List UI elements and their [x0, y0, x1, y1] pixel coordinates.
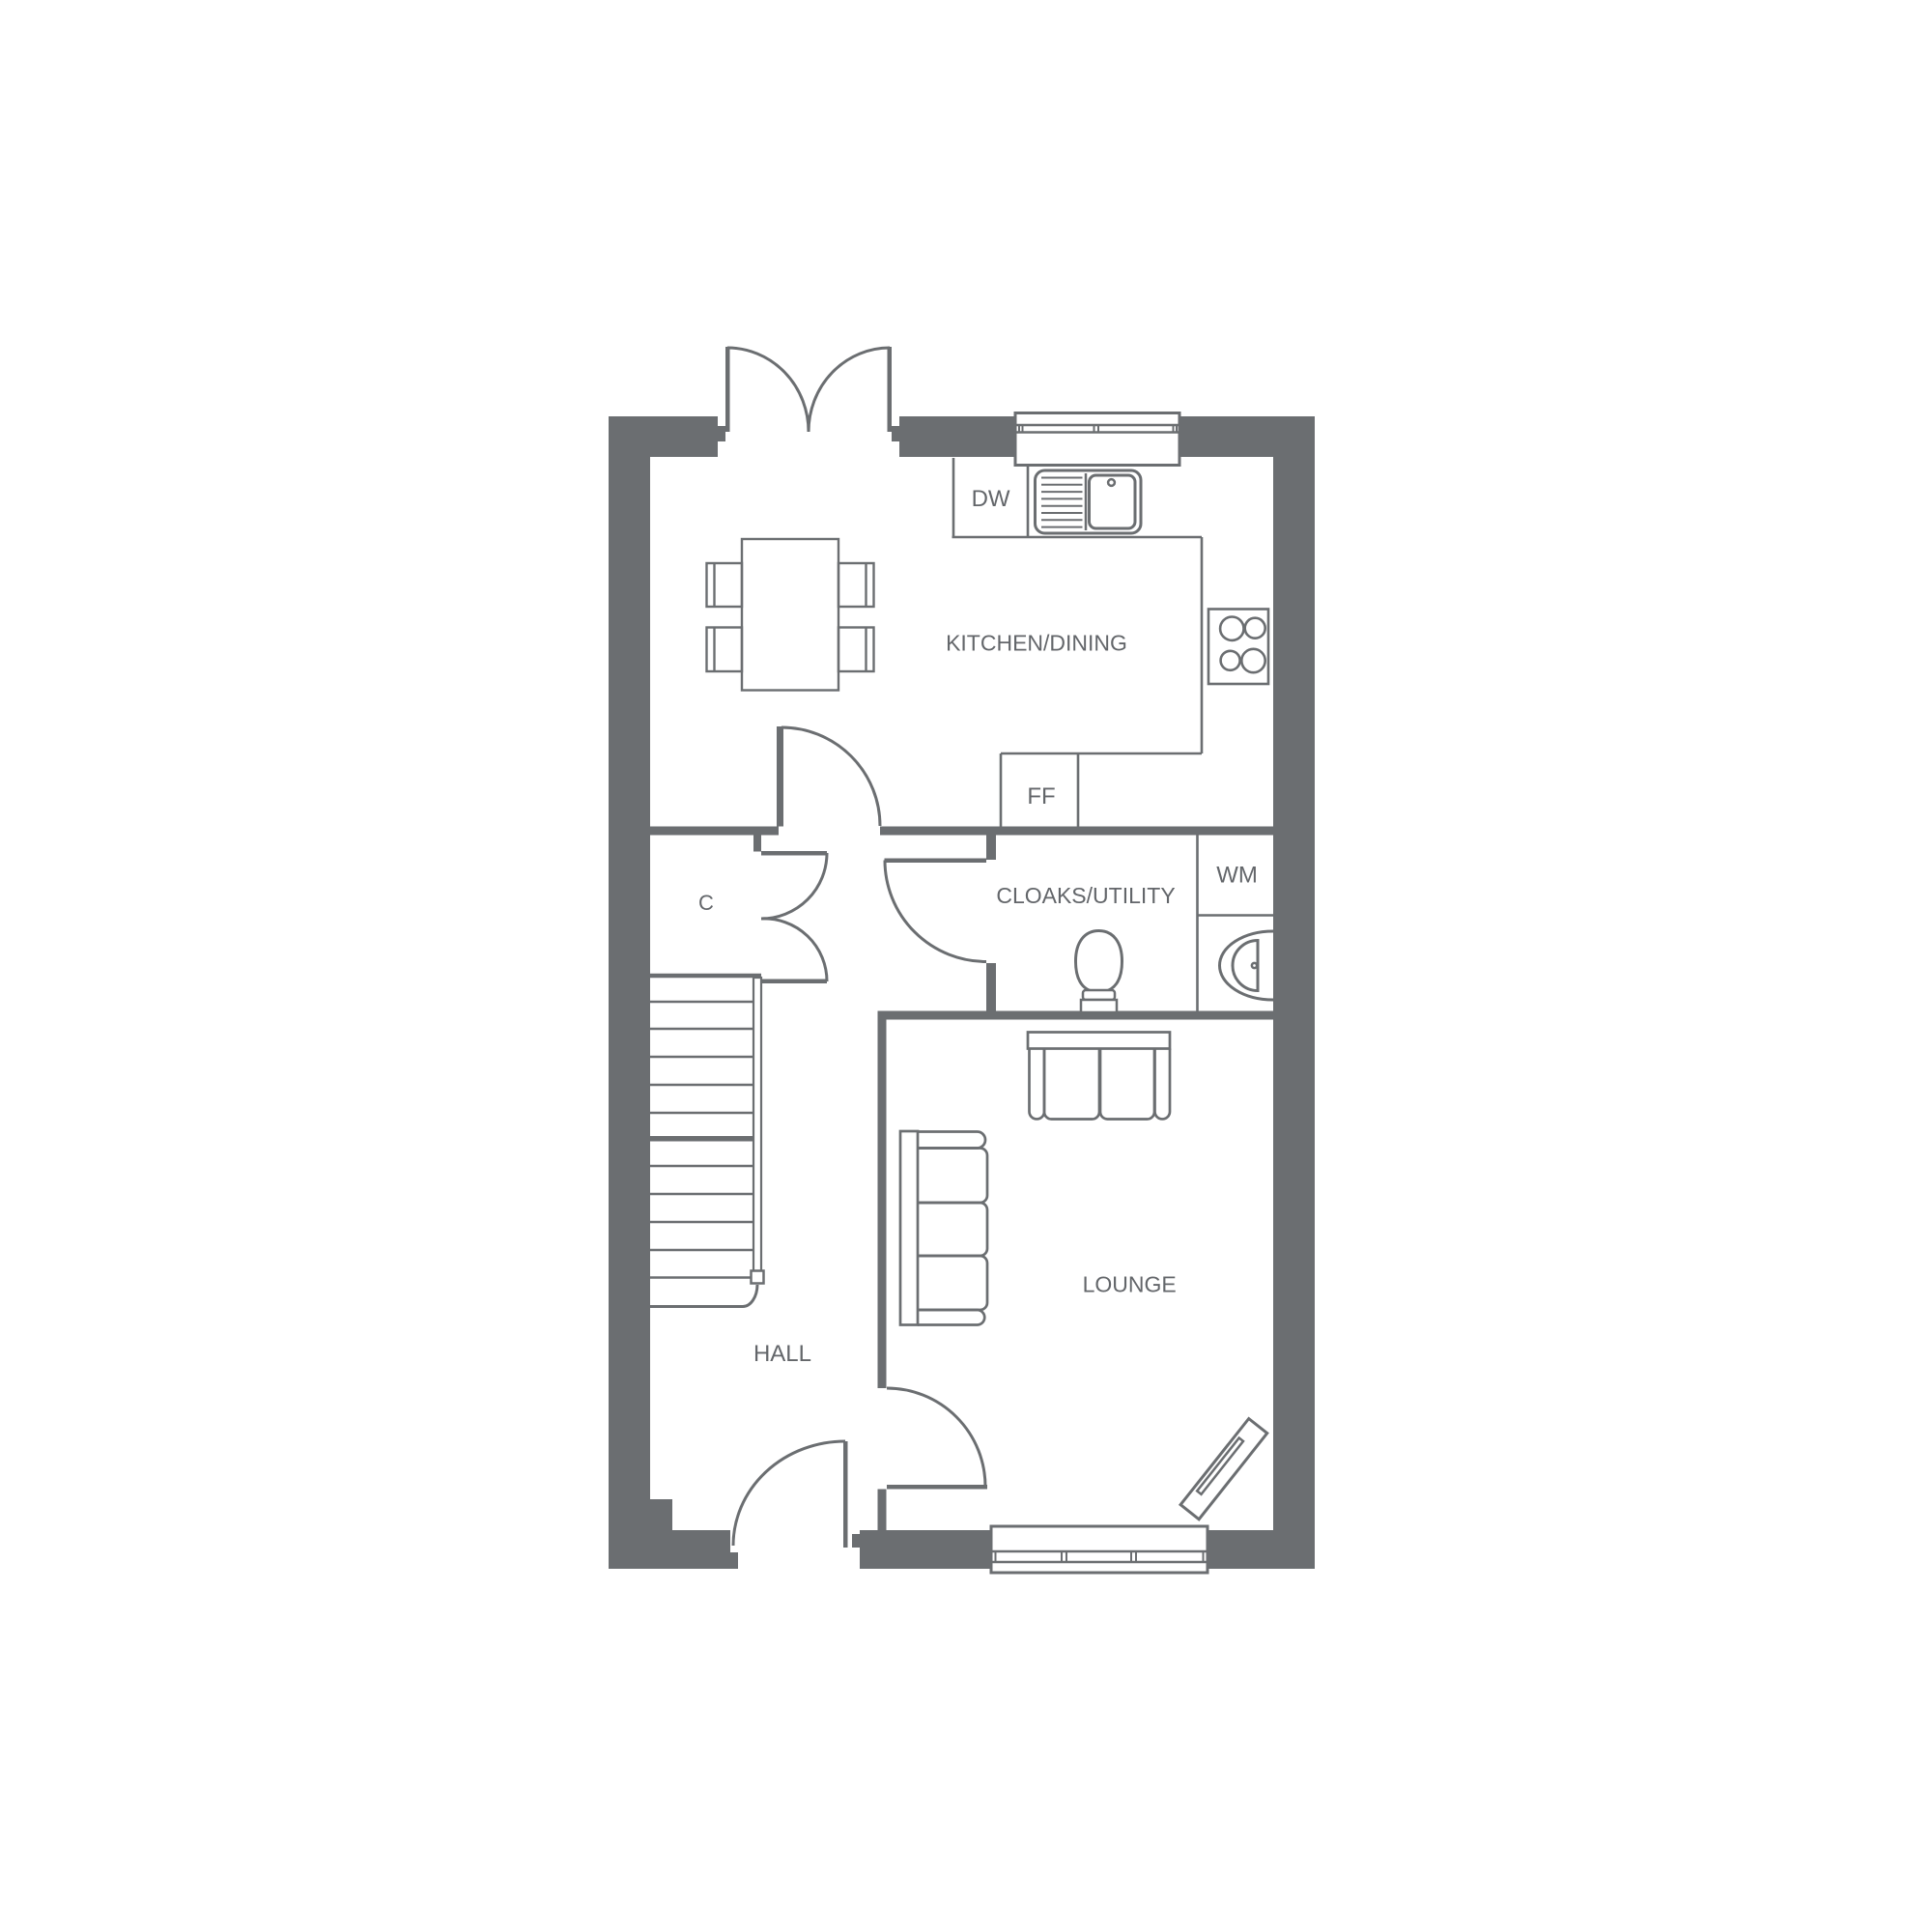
svg-text:FF: FF: [1027, 783, 1055, 810]
svg-text:HALL: HALL: [753, 1341, 811, 1367]
svg-text:KITCHEN/DINING: KITCHEN/DINING: [946, 631, 1127, 656]
svg-text:C: C: [698, 891, 714, 915]
svg-text:DW: DW: [972, 486, 1010, 512]
svg-text:CLOAKS/UTILITY: CLOAKS/UTILITY: [996, 883, 1175, 908]
svg-text:WM: WM: [1216, 863, 1258, 889]
svg-text:LOUNGE: LOUNGE: [1083, 1272, 1177, 1297]
